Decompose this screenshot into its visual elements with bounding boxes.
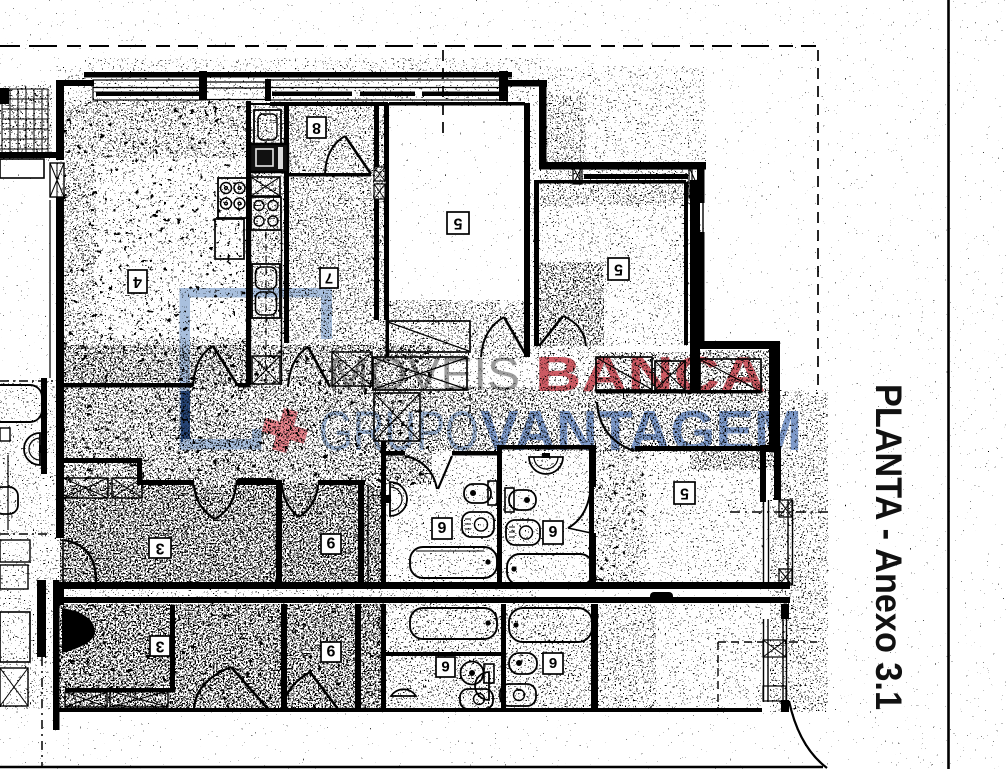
svg-text:5: 5 xyxy=(680,485,689,502)
svg-text:PLANTA - Anexo 3.1: PLANTA - Anexo 3.1 xyxy=(868,384,909,710)
svg-text:VANTAGEM: VANTAGEM xyxy=(480,399,802,463)
svg-text:3: 3 xyxy=(155,638,164,655)
svg-text:8: 8 xyxy=(312,119,321,136)
svg-text:9: 9 xyxy=(549,655,557,672)
svg-text:5: 5 xyxy=(453,215,462,232)
svg-text:7: 7 xyxy=(325,270,333,287)
svg-text:GRUPO: GRUPO xyxy=(319,399,479,462)
svg-text:3: 3 xyxy=(155,540,164,557)
svg-text:4: 4 xyxy=(133,273,142,290)
svg-text:BANCA: BANCA xyxy=(535,348,766,402)
svg-text:MÓVEIS: MÓVEIS xyxy=(328,348,520,400)
svg-text:5: 5 xyxy=(614,261,623,278)
svg-text:9: 9 xyxy=(438,520,447,537)
svg-text:6: 6 xyxy=(327,536,336,553)
svg-text:9: 9 xyxy=(441,659,449,676)
svg-text:6: 6 xyxy=(327,644,336,661)
svg-text:9: 9 xyxy=(549,524,558,541)
